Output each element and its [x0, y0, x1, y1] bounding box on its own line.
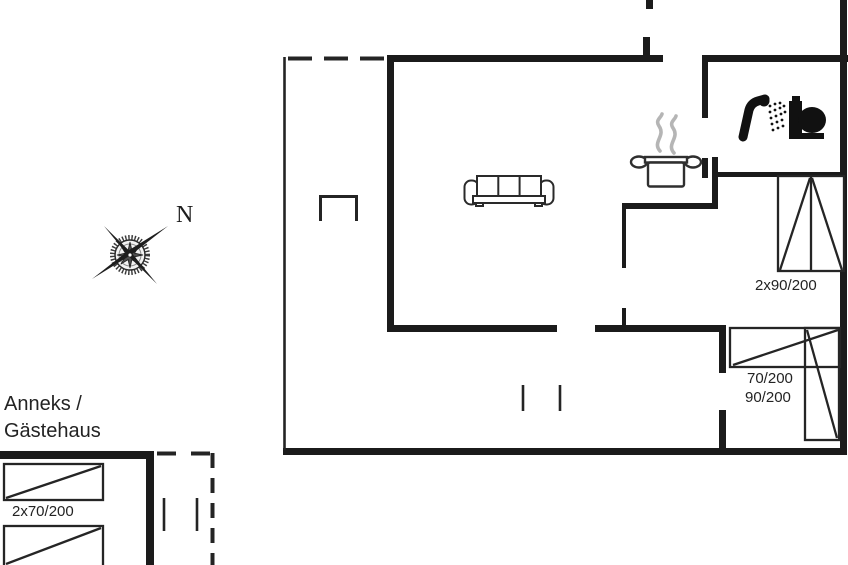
toilet-icon	[789, 96, 826, 139]
shower-icon	[743, 96, 786, 138]
annex-title-line2: Gästehaus	[4, 420, 101, 443]
double-bed-icon	[778, 176, 844, 271]
steam-icon	[657, 114, 676, 153]
annex-wall-top	[0, 451, 153, 459]
terrace-step	[321, 197, 357, 222]
wall-living-left	[387, 55, 394, 332]
bedroom2-bed-size-label-top: 70/200	[747, 370, 793, 387]
terrace-outline	[285, 57, 561, 450]
wall-living-bottom-b	[595, 325, 726, 332]
wall-top-left	[387, 55, 663, 62]
bedroom1-bed-size-label: 2x90/200	[755, 277, 817, 294]
compass-rose-icon	[92, 226, 168, 284]
sofa-icon	[465, 176, 554, 206]
wall-hall-stub	[622, 308, 626, 325]
annex-bed-size-label: 2x70/200	[12, 503, 74, 520]
annex-bed-upper-icon	[4, 464, 103, 500]
wall-top-edge-stub	[646, 0, 653, 9]
wall-bedroom2-left-upper	[719, 325, 726, 373]
cooking-pot-icon	[631, 114, 701, 187]
annex-bed-lower-icon	[4, 526, 103, 565]
wall-bath-left-lower	[702, 158, 708, 178]
wall-hall-upper	[622, 209, 626, 268]
wall-bath-left-upper	[702, 55, 708, 118]
shower-spray	[769, 102, 787, 132]
wall-living-bottom-a	[387, 325, 557, 332]
wall-bottom	[283, 448, 847, 455]
wall-kitchen-top	[622, 203, 718, 209]
wall-kitchen-side	[712, 157, 718, 209]
annex-title-line1: Anneks /	[4, 393, 82, 416]
floor-plan: N Anneks / Gästehaus 2x70/200 2x90/200 7…	[0, 0, 848, 565]
wall-top-stub	[643, 37, 650, 56]
wall-top-right	[702, 55, 848, 62]
compass-north-label: N	[176, 202, 193, 229]
annex-wall-right	[146, 451, 154, 565]
floor-plan-drawing	[0, 0, 848, 565]
single-bed-70-icon	[730, 328, 840, 367]
annex-dashed-outline	[157, 453, 216, 565]
bedroom2-bed-size-label-bottom: 90/200	[745, 389, 791, 406]
